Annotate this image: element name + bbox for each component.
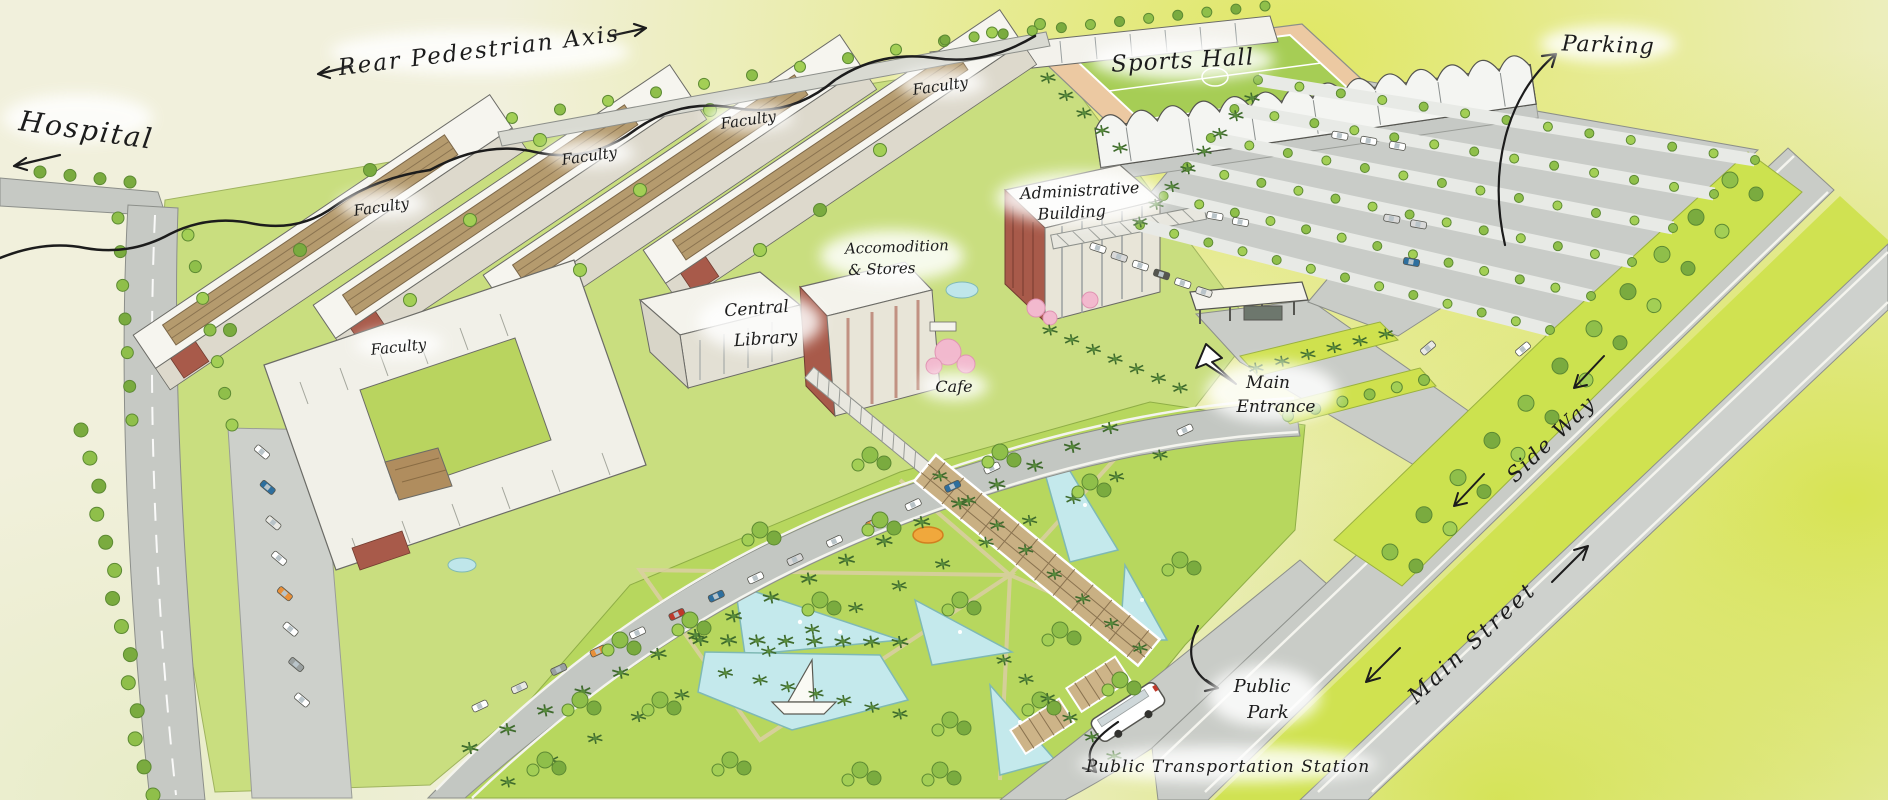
tree (1231, 4, 1241, 14)
tree (226, 419, 238, 431)
tree (1373, 242, 1382, 251)
label-public-park: Public Park (1208, 666, 1320, 726)
tree (1391, 382, 1402, 393)
tree (1408, 250, 1417, 259)
tree (117, 279, 129, 291)
tree (1144, 13, 1154, 23)
tree (627, 641, 641, 655)
tree (1443, 522, 1457, 536)
tree (891, 44, 902, 55)
tree (942, 712, 958, 728)
tree (1552, 358, 1568, 374)
tree (672, 624, 684, 636)
tree (877, 456, 891, 470)
svg-text:Cafe: Cafe (935, 377, 972, 396)
tree (1553, 201, 1562, 210)
tree (1409, 559, 1423, 573)
tree (124, 380, 136, 392)
tree (1553, 242, 1562, 251)
tree (1364, 389, 1375, 400)
label-cafe: Cafe (920, 372, 988, 400)
tree (83, 451, 97, 465)
svg-text:& Stores: & Stores (848, 259, 916, 279)
tree (1480, 267, 1489, 276)
tree (712, 764, 724, 776)
tree (1230, 208, 1239, 217)
tree (992, 444, 1008, 460)
tree (1405, 210, 1414, 219)
tree (574, 264, 587, 277)
tree (1007, 453, 1021, 467)
tree (862, 447, 878, 463)
tree (814, 204, 827, 217)
cafe-kiosk (930, 322, 956, 331)
tree (552, 761, 566, 775)
tree (1360, 164, 1369, 173)
tree (114, 246, 126, 258)
tree (1709, 149, 1718, 158)
tree (1550, 161, 1559, 170)
tree (364, 164, 377, 177)
tree (952, 592, 968, 608)
tree (146, 788, 160, 800)
tree (1543, 122, 1552, 131)
tree (1688, 209, 1704, 225)
tree (1484, 432, 1500, 448)
tree (1722, 172, 1738, 188)
tree (92, 479, 106, 493)
tree (1479, 226, 1488, 235)
tree (1437, 179, 1446, 188)
tree (1072, 486, 1084, 498)
tree (537, 752, 553, 768)
tree (1444, 258, 1453, 267)
tree (969, 32, 979, 42)
tree (940, 35, 950, 45)
tree (1337, 233, 1346, 242)
tree (947, 771, 961, 785)
tree (1630, 216, 1639, 225)
tree (74, 423, 88, 437)
tree (602, 644, 614, 656)
tree (987, 27, 998, 38)
label-parking: Parking (1540, 26, 1676, 62)
tree (121, 347, 133, 359)
tree (1587, 292, 1596, 301)
tree (1630, 175, 1639, 184)
tree (1202, 7, 1212, 17)
tree (1382, 544, 1398, 560)
tree (742, 534, 754, 546)
tree (94, 173, 106, 185)
tree (699, 78, 710, 89)
tree (124, 176, 136, 188)
tree (1102, 684, 1114, 696)
tree (827, 601, 841, 615)
tree (1416, 507, 1432, 523)
svg-text:Public Transportation Station: Public Transportation Station (1085, 757, 1370, 777)
accommodation-stores-building (800, 262, 940, 416)
tree (34, 166, 46, 178)
tree (862, 524, 874, 536)
tree (1238, 247, 1247, 256)
tree (1590, 250, 1599, 259)
tree (1173, 10, 1183, 20)
tree (404, 294, 417, 307)
tree (130, 704, 144, 718)
tree (1390, 133, 1399, 142)
tree (1310, 119, 1319, 128)
tree (1477, 485, 1491, 499)
tree (219, 387, 231, 399)
label-public-transportation-station: Public Transportation Station (1078, 746, 1378, 782)
tree (1419, 375, 1430, 386)
tree (1331, 194, 1340, 203)
tree (1056, 23, 1066, 33)
tree (64, 169, 76, 181)
label-central-library: Central Library (698, 292, 822, 352)
label-sports-hall: Sports Hall (1091, 40, 1275, 80)
tree (1375, 282, 1384, 291)
tree (1670, 182, 1679, 191)
tree (1306, 264, 1315, 273)
tree (1067, 631, 1081, 645)
tree (1399, 171, 1408, 180)
tree (612, 632, 628, 648)
tree (1551, 283, 1560, 292)
tree (667, 701, 681, 715)
tree (1511, 317, 1520, 326)
tree (843, 53, 854, 64)
tree (1430, 140, 1439, 149)
tree (1230, 105, 1239, 114)
tree (1341, 273, 1350, 282)
svg-text:Main: Main (1245, 373, 1290, 393)
tree (1322, 156, 1331, 165)
masterplan-canvas: Hospital Rear Pedestrian Axis Faculty Fa… (0, 0, 1888, 800)
tree (634, 184, 647, 197)
tree (108, 563, 122, 577)
tree (1336, 89, 1345, 98)
tree (1170, 229, 1179, 238)
tree (128, 732, 142, 746)
tree (1195, 200, 1204, 209)
tree (1409, 291, 1418, 300)
tree (562, 704, 574, 716)
label-accommodation-stores: Accomodition & Stores (820, 230, 964, 282)
tree (1476, 186, 1485, 195)
tree (1510, 154, 1519, 163)
tree (1681, 261, 1695, 275)
tree (1220, 170, 1229, 179)
svg-text:Parking: Parking (1560, 31, 1655, 59)
tree (1654, 246, 1670, 262)
tree (1477, 308, 1486, 317)
tree (1254, 76, 1263, 85)
tree (1647, 299, 1661, 313)
tree (1710, 190, 1719, 199)
tree (1470, 147, 1479, 156)
tree (123, 648, 137, 662)
tree (754, 244, 767, 257)
tree (1590, 168, 1599, 177)
tree (932, 724, 944, 736)
svg-text:Park: Park (1246, 702, 1289, 723)
tree (998, 29, 1008, 39)
tree (1115, 16, 1125, 26)
tree (682, 612, 698, 628)
svg-text:Entrance: Entrance (1236, 397, 1316, 417)
tree (1515, 275, 1524, 284)
tree (642, 704, 654, 716)
tree (932, 762, 948, 778)
tree (1461, 109, 1470, 118)
tree (1442, 218, 1451, 227)
tree (767, 531, 781, 545)
tree (752, 522, 768, 538)
tree (1283, 149, 1292, 158)
tree (852, 459, 864, 471)
tree (507, 113, 518, 124)
svg-text:Accomodition: Accomodition (843, 236, 949, 258)
tree (1350, 126, 1359, 135)
tree (842, 774, 854, 786)
tree (119, 313, 131, 325)
tree (982, 456, 994, 468)
tree (1715, 224, 1729, 238)
tree (464, 214, 477, 227)
tree (852, 762, 868, 778)
tree (1206, 134, 1215, 143)
tree (1368, 202, 1377, 211)
tree (197, 292, 209, 304)
tree (1628, 258, 1637, 267)
tree (967, 601, 981, 615)
label-administrative-building: Administrative Building (996, 172, 1164, 224)
tree (90, 507, 104, 521)
tree (126, 414, 138, 426)
tree (957, 721, 971, 735)
tree (887, 521, 901, 535)
tree (99, 535, 113, 549)
tree (1443, 299, 1452, 308)
tree (1516, 234, 1525, 243)
tree (137, 760, 151, 774)
svg-text:Building: Building (1036, 201, 1106, 224)
tree (1668, 142, 1677, 151)
tree (922, 774, 934, 786)
campus-masterplan-illustration: Hospital Rear Pedestrian Axis Faculty Fa… (0, 0, 1888, 800)
courtyard-pool (448, 558, 476, 572)
tree (182, 229, 194, 241)
tree (1042, 634, 1054, 646)
tree (1613, 336, 1627, 350)
tree (1022, 704, 1034, 716)
tree (1085, 20, 1095, 30)
tree (527, 764, 539, 776)
tree (1260, 1, 1270, 11)
tree (1514, 194, 1523, 203)
tree (224, 324, 237, 337)
tree (1620, 284, 1636, 300)
tree (1162, 564, 1174, 576)
tree (211, 356, 223, 368)
tree (1097, 483, 1111, 497)
tree (1626, 136, 1635, 145)
label-main-entrance: Main Entrance (1206, 362, 1338, 422)
tree (1378, 96, 1387, 105)
tree (1302, 225, 1311, 234)
tree (802, 604, 814, 616)
tree (294, 244, 307, 257)
tree (1591, 209, 1600, 218)
tree (747, 70, 758, 81)
svg-text:Public: Public (1233, 676, 1291, 697)
tree (189, 261, 201, 273)
tree (106, 591, 120, 605)
tree (1027, 26, 1037, 36)
tree (1204, 238, 1213, 247)
tree (651, 87, 662, 98)
flower-bed (913, 527, 943, 543)
tree (1272, 256, 1281, 265)
tree (722, 752, 738, 768)
tree (652, 692, 668, 708)
tree (1669, 224, 1678, 233)
tree (587, 701, 601, 715)
tree (572, 692, 588, 708)
tree (555, 104, 566, 115)
tree (942, 604, 954, 616)
tree (534, 134, 547, 147)
tree (795, 61, 806, 72)
tree (1127, 681, 1141, 695)
tree (114, 620, 128, 634)
tree (1751, 156, 1760, 165)
tree (1546, 326, 1555, 335)
tree (1172, 552, 1188, 568)
tree (872, 512, 888, 528)
tree (1270, 112, 1279, 121)
tree (1518, 395, 1534, 411)
tree (1749, 187, 1763, 201)
tree (1450, 470, 1466, 486)
tree (1112, 672, 1128, 688)
tree (697, 621, 711, 635)
tree (1585, 129, 1594, 138)
tree (121, 676, 135, 690)
tree (1586, 321, 1602, 337)
tree (874, 144, 887, 157)
tree (1082, 474, 1098, 490)
tree (112, 212, 124, 224)
tree (1266, 217, 1275, 226)
tree (1295, 82, 1304, 91)
tree (204, 324, 216, 336)
tree (867, 771, 881, 785)
tree (737, 761, 751, 775)
tree (1187, 561, 1201, 575)
tree (1419, 102, 1428, 111)
tree (1294, 186, 1303, 195)
tree (1052, 622, 1068, 638)
tree (1337, 396, 1348, 407)
tree (603, 95, 614, 106)
tree (1245, 141, 1254, 150)
tree (1257, 178, 1266, 187)
tree (812, 592, 828, 608)
